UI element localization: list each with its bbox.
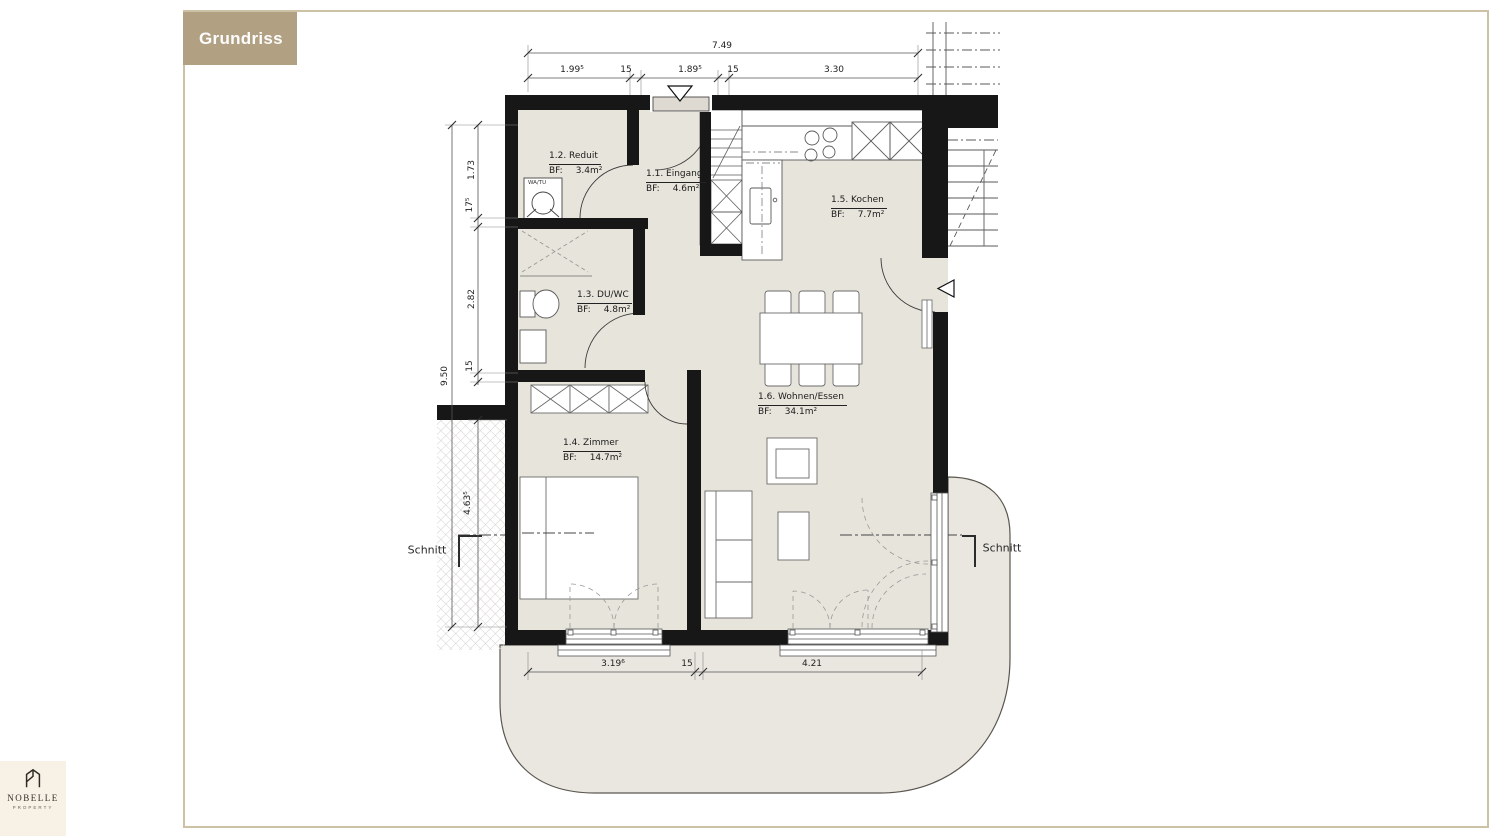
nobelle-logo-icon (22, 768, 44, 790)
room-label-wohnen: 1.6. Wohnen/Essen BF:34.1m² (758, 392, 847, 418)
room-label-reduit: 1.2. Reduit BF:3.4m² (549, 151, 602, 177)
dim-top-d: 15 (727, 65, 738, 75)
dim-bottom-b: 15 (681, 659, 692, 669)
floor-plan-drawing (0, 0, 1500, 836)
dim-top-total: 7.49 (712, 41, 732, 51)
dim-left-c: 2.82 (467, 289, 477, 309)
room-label-zimmer: 1.4. Zimmer BF:14.7m² (563, 438, 622, 464)
section-label-left: Schnitt (408, 544, 447, 557)
brand-logo: NOBELLE PROPERTY (0, 761, 66, 836)
room-label-duwc: 1.3. DU/WC BF:4.8m² (577, 290, 632, 316)
room-label-eingang: 1.1. Eingang BF:4.6m² (646, 169, 706, 195)
room-label-kochen: 1.5. Kochen BF:7.7m² (831, 195, 887, 221)
dim-left-a: 1.73 (467, 160, 477, 180)
dim-top-c: 1.89⁵ (678, 65, 702, 75)
dim-left-b: 17⁵ (465, 197, 475, 212)
dim-left-total: 9.50 (440, 366, 450, 386)
dim-top-b: 15 (620, 65, 631, 75)
dim-left-lower: 4.63⁵ (463, 491, 473, 515)
dim-top-e: 3.30 (824, 65, 844, 75)
section-label-right: Schnitt (983, 542, 1022, 555)
dim-bottom-a: 3.19⁶ (601, 659, 625, 669)
washer-label: WA/TU (528, 180, 546, 186)
brand-subtitle: PROPERTY (13, 805, 54, 810)
floorplan-page: Grundriss (0, 0, 1500, 836)
brand-name: NOBELLE (7, 793, 59, 803)
dim-top-a: 1.99⁵ (560, 65, 584, 75)
dim-left-d: 15 (465, 360, 475, 371)
dim-bottom-c: 4.21 (802, 659, 822, 669)
